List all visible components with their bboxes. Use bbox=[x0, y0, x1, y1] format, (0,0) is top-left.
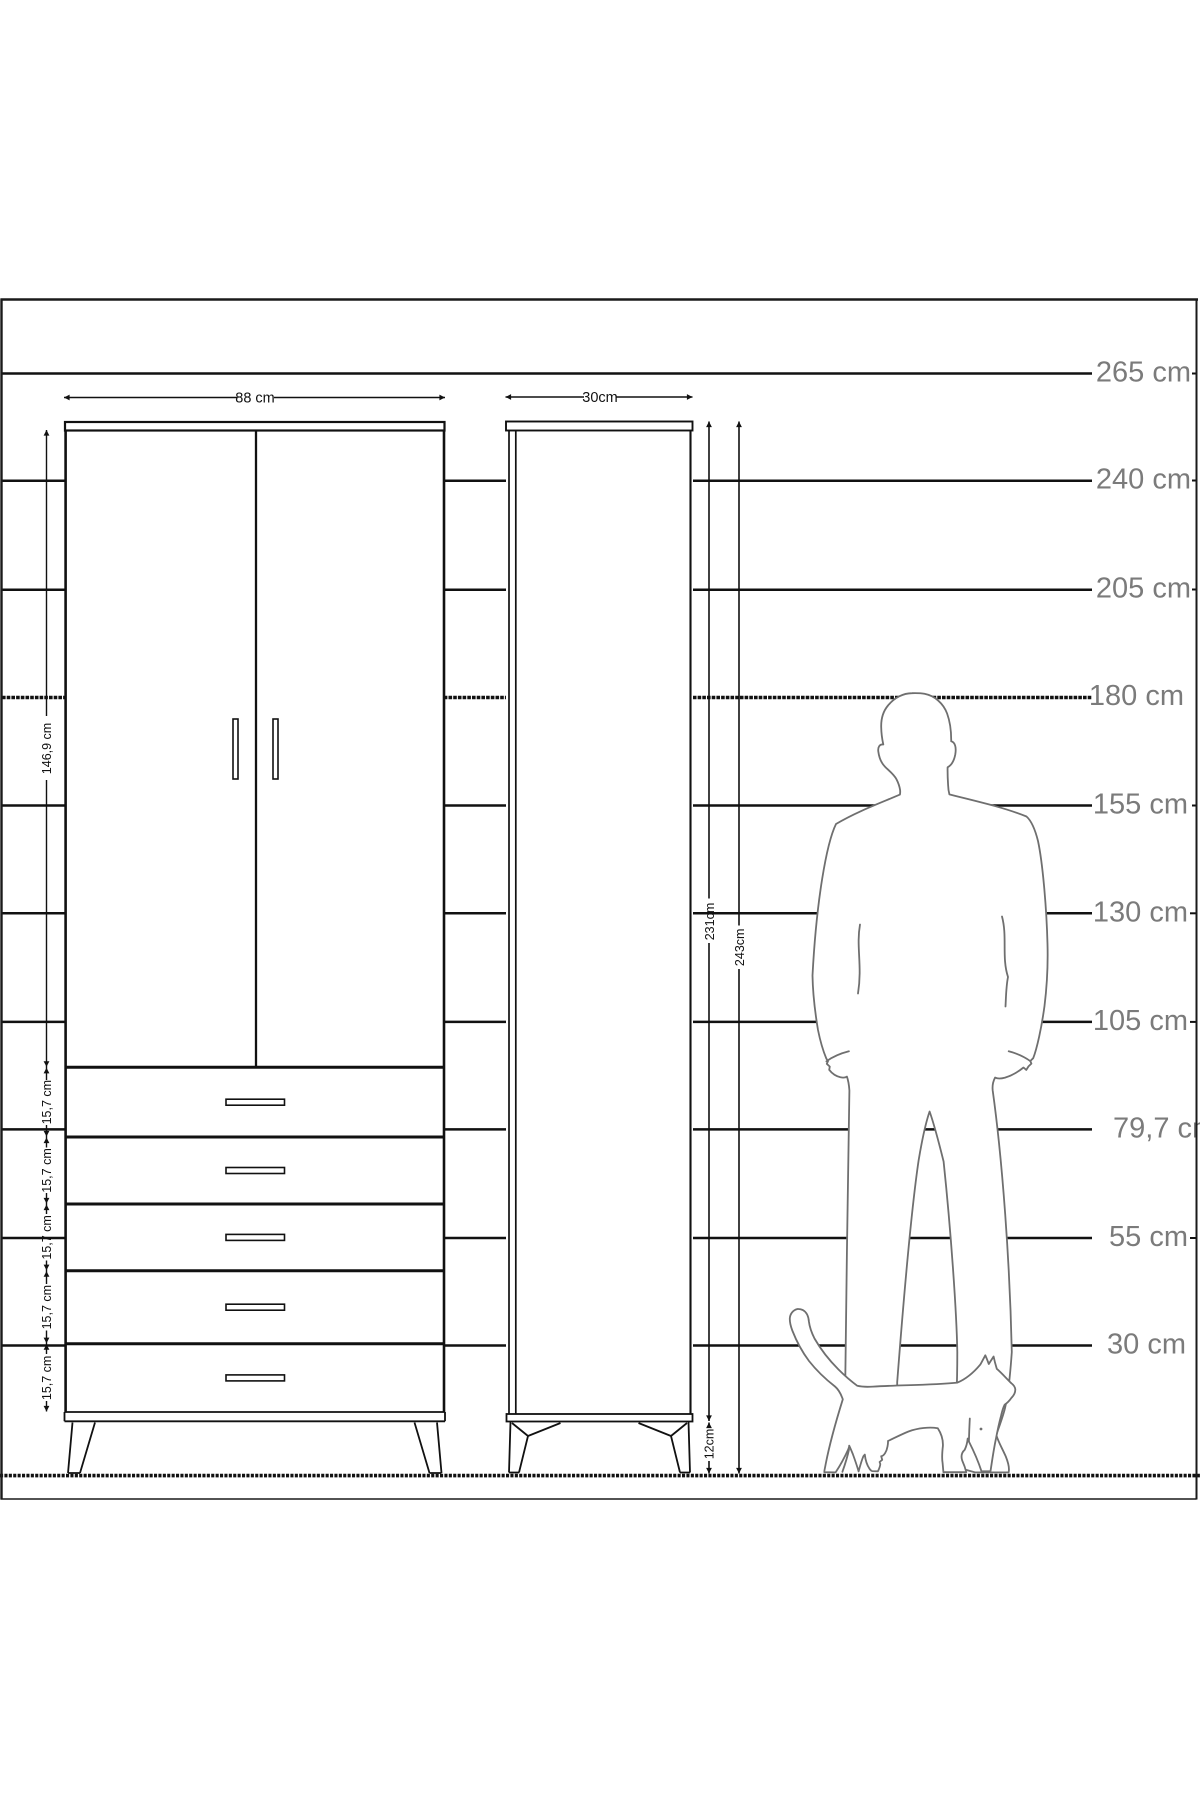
svg-text:180 cm: 180 cm bbox=[1089, 680, 1184, 712]
svg-text:205 cm: 205 cm bbox=[1096, 573, 1191, 605]
svg-text:15,7 cm: 15,7 cm bbox=[40, 1080, 54, 1124]
svg-text:231cm: 231cm bbox=[703, 903, 717, 941]
svg-text:79,7 cm: 79,7 cm bbox=[1113, 1112, 1200, 1144]
svg-text:15,7 cm: 15,7 cm bbox=[40, 1215, 54, 1259]
svg-text:105 cm: 105 cm bbox=[1093, 1005, 1188, 1037]
svg-text:130 cm: 130 cm bbox=[1093, 896, 1188, 928]
svg-text:240 cm: 240 cm bbox=[1096, 464, 1191, 496]
svg-text:15,7 cm: 15,7 cm bbox=[40, 1285, 54, 1329]
svg-text:30cm: 30cm bbox=[582, 390, 617, 406]
svg-text:55 cm: 55 cm bbox=[1109, 1221, 1188, 1253]
svg-text:12cm: 12cm bbox=[703, 1429, 717, 1460]
svg-text:243cm: 243cm bbox=[733, 929, 747, 967]
svg-text:265 cm: 265 cm bbox=[1096, 357, 1191, 389]
svg-text:88 cm: 88 cm bbox=[235, 391, 275, 407]
svg-text:15,7 cm: 15,7 cm bbox=[40, 1148, 54, 1192]
svg-text:30 cm: 30 cm bbox=[1107, 1329, 1186, 1361]
svg-text:15,7 cm: 15,7 cm bbox=[40, 1356, 54, 1400]
svg-text:146,9 cm: 146,9 cm bbox=[40, 723, 54, 774]
svg-text:155 cm: 155 cm bbox=[1093, 789, 1188, 821]
